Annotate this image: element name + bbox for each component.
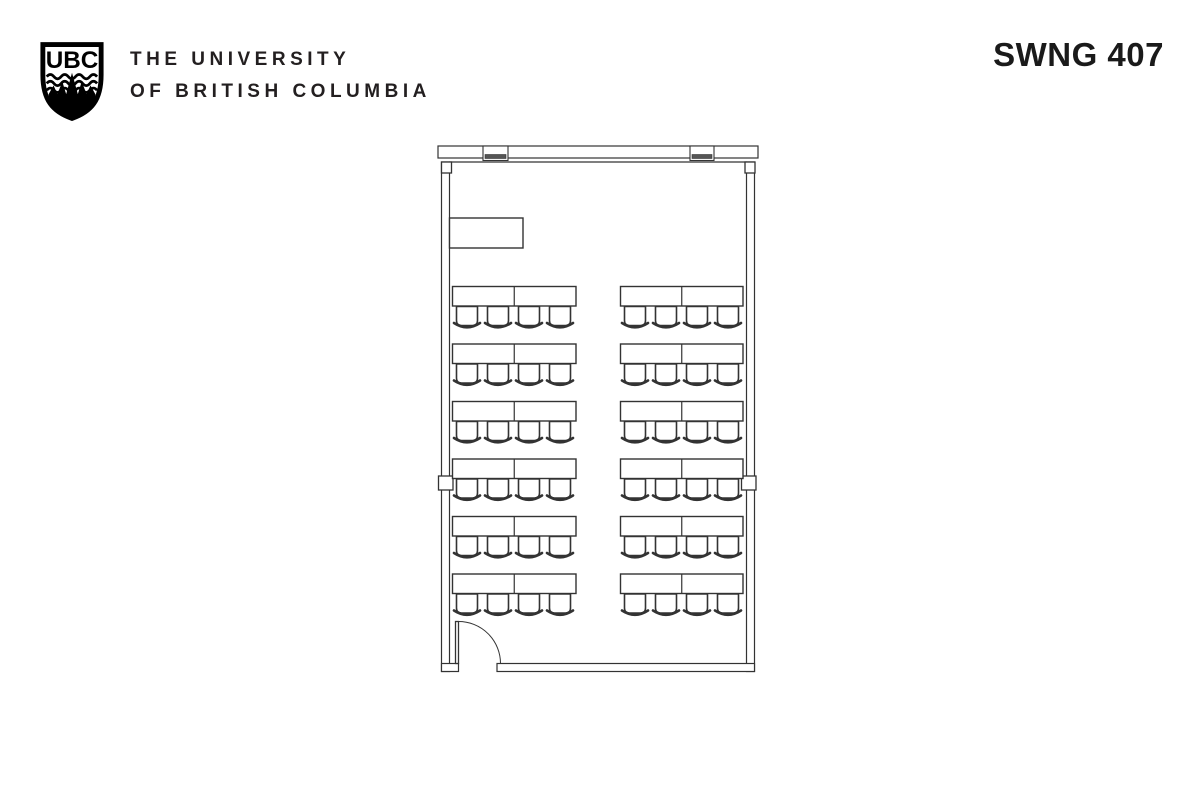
chair <box>488 364 509 383</box>
column-mid-left <box>439 476 454 490</box>
chair <box>625 422 646 441</box>
chair <box>457 479 478 498</box>
right-wall <box>747 162 755 672</box>
chair <box>488 307 509 326</box>
room-label: SWNG 407 <box>993 36 1164 74</box>
floor-plan <box>430 135 770 680</box>
chair <box>718 307 739 326</box>
chair <box>519 594 540 613</box>
chair <box>718 537 739 556</box>
chair <box>625 594 646 613</box>
wordmark-line2: OF BRITISH COLUMBIA <box>130 76 431 108</box>
crest-monogram: UBC <box>46 47 99 74</box>
column-top-right <box>745 162 755 173</box>
ubc-wordmark: THE UNIVERSITY OF BRITISH COLUMBIA <box>130 44 431 108</box>
chair <box>687 479 708 498</box>
chair <box>550 594 571 613</box>
window-mullion-sill <box>692 155 712 159</box>
chair <box>519 307 540 326</box>
chair <box>488 594 509 613</box>
chair <box>457 594 478 613</box>
chair <box>656 364 677 383</box>
chair <box>687 594 708 613</box>
bottom-wall <box>497 664 755 672</box>
chair <box>519 537 540 556</box>
chair <box>550 537 571 556</box>
chair <box>687 307 708 326</box>
chair <box>488 479 509 498</box>
left-wall <box>442 162 450 672</box>
chair <box>519 479 540 498</box>
chair <box>687 537 708 556</box>
bottom-wall-stub <box>442 664 459 672</box>
window-mullion-sill <box>485 155 506 159</box>
chair <box>718 364 739 383</box>
page: UBC THE UNIVERSITY OF BRITISH COLUMBIA S… <box>0 0 1200 800</box>
chair <box>457 364 478 383</box>
chair <box>656 422 677 441</box>
chair <box>625 307 646 326</box>
chair <box>656 537 677 556</box>
chair <box>519 422 540 441</box>
chair <box>550 307 571 326</box>
chair <box>656 594 677 613</box>
chair <box>488 537 509 556</box>
chair <box>457 307 478 326</box>
door-swing-arc <box>459 622 501 664</box>
door-leaf <box>456 622 459 664</box>
chair <box>550 479 571 498</box>
chair <box>550 422 571 441</box>
wordmark-line1: THE UNIVERSITY <box>130 44 431 76</box>
chair <box>656 479 677 498</box>
column-top-left <box>442 162 452 173</box>
ubc-crest-logo: UBC <box>38 40 106 123</box>
chair <box>687 364 708 383</box>
chair <box>718 479 739 498</box>
chair <box>519 364 540 383</box>
chair <box>625 537 646 556</box>
chair <box>488 422 509 441</box>
chair <box>550 364 571 383</box>
chair <box>687 422 708 441</box>
lectern <box>450 218 524 248</box>
chair <box>718 422 739 441</box>
chair <box>457 537 478 556</box>
chair <box>457 422 478 441</box>
chair <box>656 307 677 326</box>
chair <box>718 594 739 613</box>
chair <box>625 479 646 498</box>
chair <box>625 364 646 383</box>
